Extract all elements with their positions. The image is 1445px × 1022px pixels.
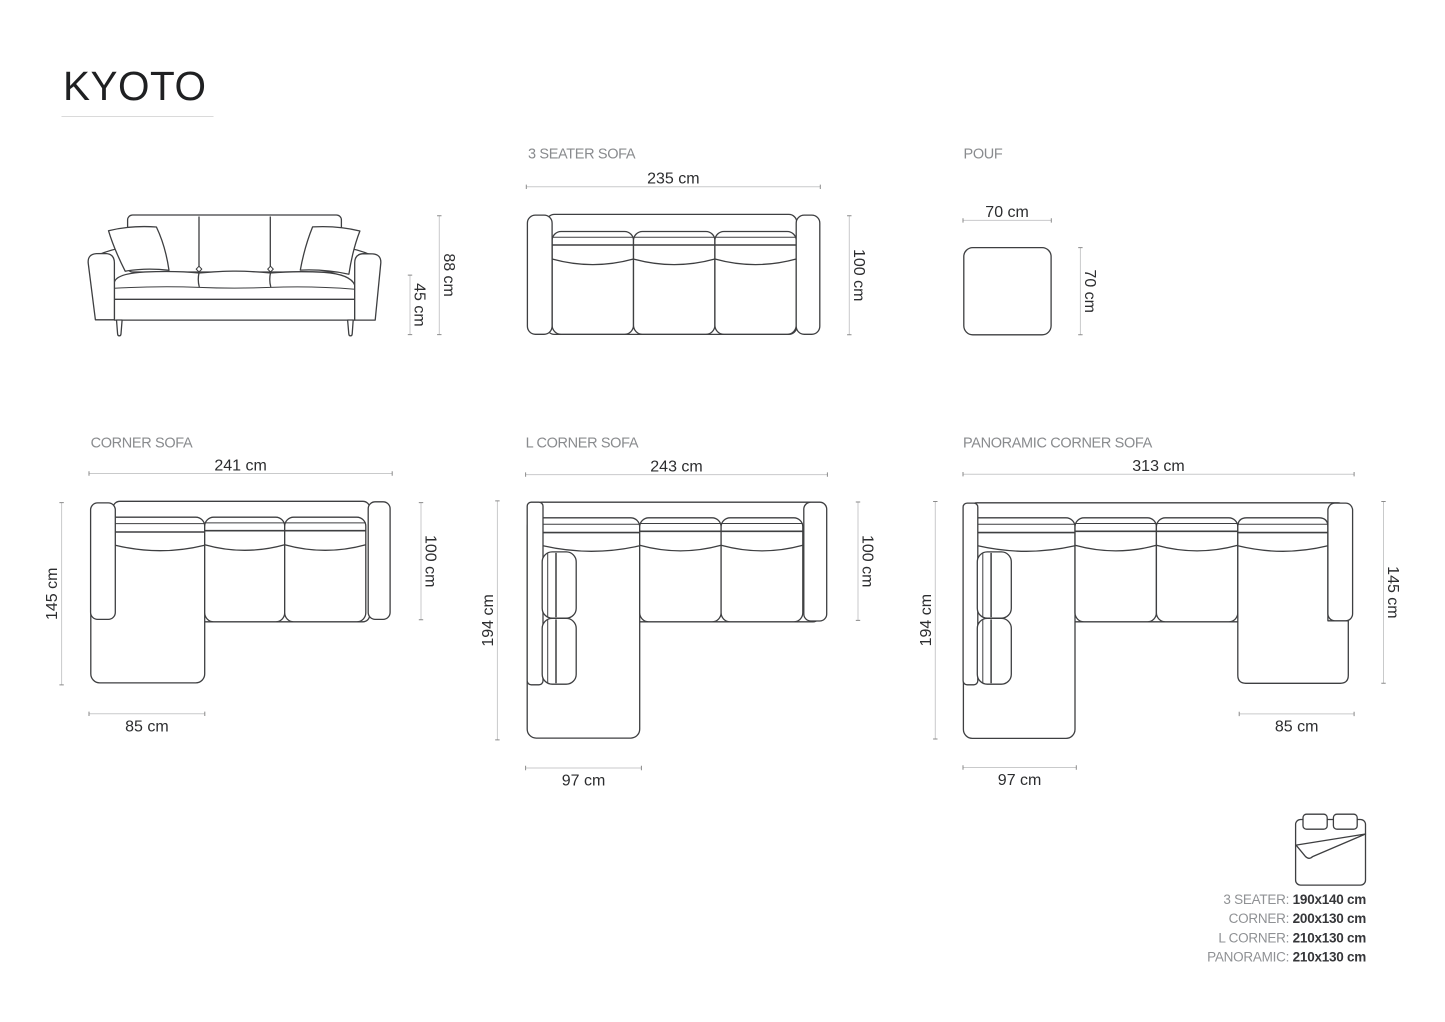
svg-text:PANORAMIC: 210x130 cm: PANORAMIC: 210x130 cm	[1207, 950, 1366, 965]
svg-text:88 cm: 88 cm	[440, 253, 457, 297]
svg-text:313 cm: 313 cm	[1132, 458, 1184, 475]
svg-text:L CORNER: 210x130 cm: L CORNER: 210x130 cm	[1218, 930, 1366, 945]
svg-text:CORNER: 200x130 cm: CORNER: 200x130 cm	[1229, 911, 1367, 926]
svg-text:100 cm: 100 cm	[859, 535, 876, 587]
svg-text:194 cm: 194 cm	[918, 594, 935, 646]
svg-text:235 cm: 235 cm	[647, 171, 699, 188]
svg-text:145 cm: 145 cm	[1384, 566, 1401, 618]
svg-text:3 SEATER: 190x140 cm: 3 SEATER: 190x140 cm	[1223, 892, 1366, 907]
svg-text:243 cm: 243 cm	[650, 458, 702, 475]
svg-text:85 cm: 85 cm	[1275, 719, 1319, 736]
svg-text:CORNER SOFA: CORNER SOFA	[91, 436, 193, 452]
svg-text:100 cm: 100 cm	[422, 535, 439, 587]
svg-text:POUF: POUF	[964, 147, 1003, 163]
svg-text:85 cm: 85 cm	[125, 719, 169, 736]
svg-text:97 cm: 97 cm	[998, 772, 1042, 789]
svg-text:3 SEATER SOFA: 3 SEATER SOFA	[528, 147, 636, 163]
svg-text:145 cm: 145 cm	[44, 568, 61, 620]
svg-text:PANORAMIC CORNER SOFA: PANORAMIC CORNER SOFA	[963, 436, 1153, 452]
svg-text:L CORNER SOFA: L CORNER SOFA	[526, 436, 639, 452]
svg-text:194 cm: 194 cm	[480, 594, 497, 646]
svg-text:70 cm: 70 cm	[985, 204, 1029, 221]
svg-text:97 cm: 97 cm	[562, 773, 606, 790]
svg-text:100 cm: 100 cm	[850, 249, 867, 301]
svg-text:45 cm: 45 cm	[411, 283, 428, 327]
svg-text:70 cm: 70 cm	[1081, 269, 1098, 313]
svg-text:241 cm: 241 cm	[214, 457, 266, 474]
svg-text:KYOTO: KYOTO	[63, 63, 207, 109]
